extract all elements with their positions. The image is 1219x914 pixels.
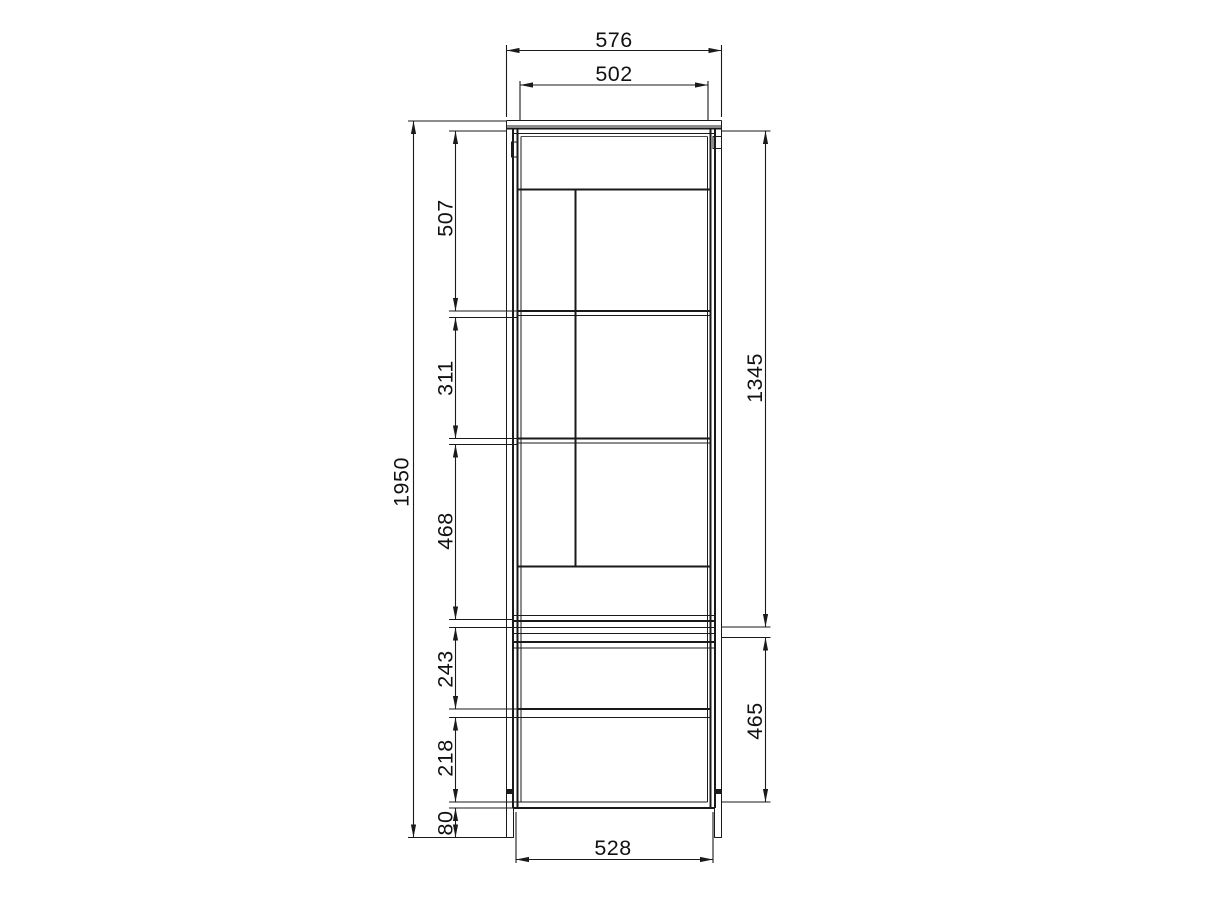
dimension-base-width: 528 [516,812,713,863]
dimension-door-height: 1345 [722,131,771,627]
dim-label-80: 80 [434,811,458,836]
dimension-lower-section: 468 [434,445,458,620]
dim-label-1950: 1950 [390,457,414,507]
drawer-rail [518,709,712,718]
dim-label-1345: 1345 [743,353,767,403]
shelf-lower [518,439,712,444]
dimension-door-width: 502 [520,62,708,120]
dimension-drawer-lower: 218 [434,718,458,803]
top-rail [513,134,715,137]
dimension-base-height: 465 [722,638,771,803]
left-leg-notch [507,789,514,794]
right-side-frame [708,129,722,809]
dimension-annotations: 576 502 1950 [390,28,771,863]
left-chain-extension-lines [449,131,521,808]
dim-label-528: 528 [594,836,631,860]
bottom-panel [513,802,715,808]
left-side-frame [507,129,522,809]
top-panel [507,121,722,129]
drawing-canvas: 576 502 1950 [0,0,1219,914]
cabinet-body [507,121,722,838]
dim-label-507: 507 [434,199,458,236]
mid-divider-band [513,616,715,649]
dimension-middle-section: 311 [434,318,458,439]
cabinet-dimension-drawing: 576 502 1950 [0,0,1219,914]
dim-label-468: 468 [434,512,458,549]
dim-label-311: 311 [434,360,458,396]
dim-label-502: 502 [595,62,632,86]
dimension-drawer-upper: 243 [434,628,458,710]
dim-label-576: 576 [595,28,632,52]
shelf-upper [518,311,712,316]
dimension-plinth-height: 80 [434,808,458,838]
dim-label-465: 465 [743,702,767,739]
right-leg-notch [715,789,722,794]
dimension-upper-section: 507 [434,131,458,311]
dim-label-243: 243 [434,650,458,687]
dim-label-218: 218 [434,739,458,776]
